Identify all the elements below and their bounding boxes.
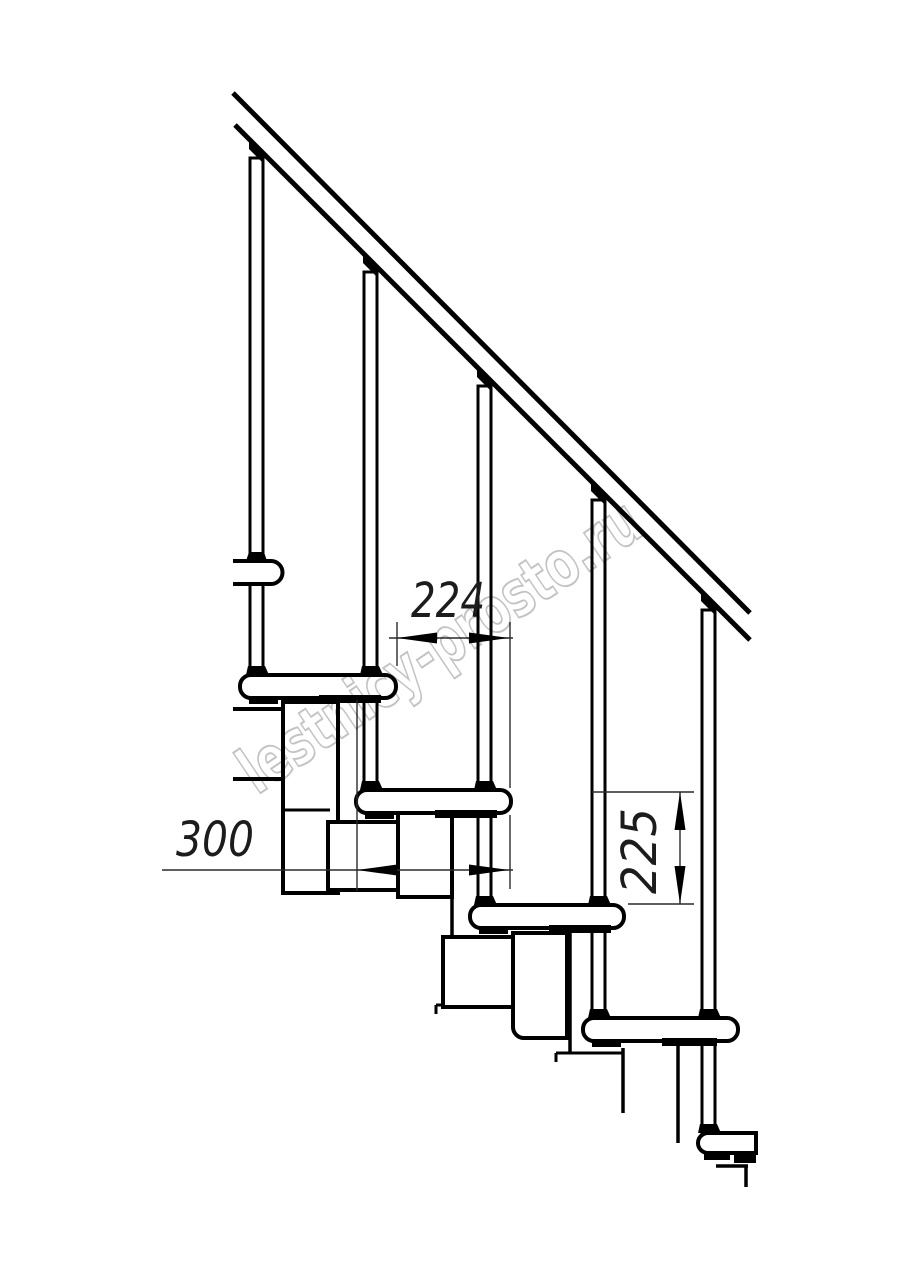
pad	[704, 1151, 730, 1160]
dimension-rise-225: 225	[592, 792, 694, 904]
baluster-1	[250, 158, 263, 675]
foot	[698, 1124, 721, 1133]
bracket-collar	[246, 552, 267, 561]
foot	[588, 896, 611, 905]
arrowhead-down	[675, 866, 686, 904]
tread-5-partial	[698, 1133, 756, 1153]
dim-label-depth: 300	[176, 812, 254, 868]
pad	[734, 1151, 756, 1163]
foot	[698, 1009, 721, 1018]
tread-2	[356, 790, 511, 813]
foot	[474, 896, 497, 905]
module-3-body	[513, 933, 567, 1038]
foot	[360, 781, 383, 790]
pad	[549, 925, 611, 933]
tread-4	[583, 1018, 738, 1041]
pad	[435, 810, 497, 818]
pad	[479, 926, 508, 934]
pad	[662, 1038, 717, 1046]
drawing-canvas: 224 300 225 lestnicy-prosto.ru	[0, 0, 914, 1280]
pad	[365, 811, 394, 819]
pad	[592, 1039, 621, 1047]
foot	[588, 1009, 611, 1018]
handrail-bracket	[233, 552, 283, 584]
dim-label-rise: 225	[612, 808, 668, 894]
bracket-body	[233, 561, 283, 584]
module-2-body	[398, 813, 452, 897]
staircase-technical-drawing: 224 300 225 lestnicy-prosto.ru	[0, 0, 914, 1280]
arrowhead-up	[675, 792, 686, 830]
foot	[474, 781, 497, 790]
module-1-square	[328, 822, 404, 890]
baluster-5	[702, 610, 715, 1133]
foot	[246, 666, 269, 675]
module-2-square	[443, 937, 518, 1007]
tread-3	[470, 905, 624, 928]
pad	[249, 696, 278, 704]
